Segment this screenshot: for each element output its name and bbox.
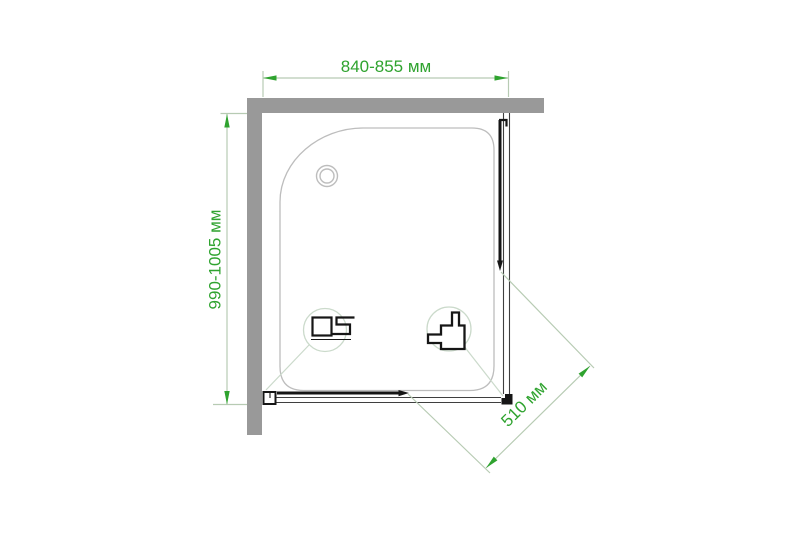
diagram-canvas: 840-855 мм 990-1005 мм 510 мм (0, 0, 800, 533)
dimension-arrow-bottom (224, 391, 229, 405)
extension-line-lower (408, 394, 490, 473)
width-dimension-label: 840-855 мм (341, 57, 432, 76)
bottom-rail-profile-callout (266, 309, 355, 391)
door-opening-dimension: 510 мм (408, 272, 594, 473)
callout-circle (304, 309, 347, 352)
wall-left (247, 98, 262, 435)
depth-dimension: 990-1005 мм (206, 114, 248, 405)
shower-tray-outline (280, 128, 494, 391)
door-slide-arrow-icon (497, 261, 503, 272)
extension-line-upper (501, 272, 594, 368)
width-dimension: 840-855 мм (263, 57, 509, 97)
dimension-arrow-left (263, 75, 277, 80)
drain-inner-circle (320, 169, 334, 183)
wall-profile-callout (427, 307, 503, 396)
wall-top (247, 98, 544, 113)
dimension-arrow-right (495, 75, 509, 80)
drain-icon (317, 166, 338, 187)
dimension-arrow-top (224, 114, 229, 128)
shower-enclosure-dimension-diagram: 840-855 мм 990-1005 мм 510 мм (0, 0, 800, 533)
bottom-door-track (263, 390, 513, 405)
right-door-track (497, 113, 510, 394)
callout-leader-line (266, 345, 310, 391)
depth-dimension-label: 990-1005 мм (206, 210, 225, 310)
